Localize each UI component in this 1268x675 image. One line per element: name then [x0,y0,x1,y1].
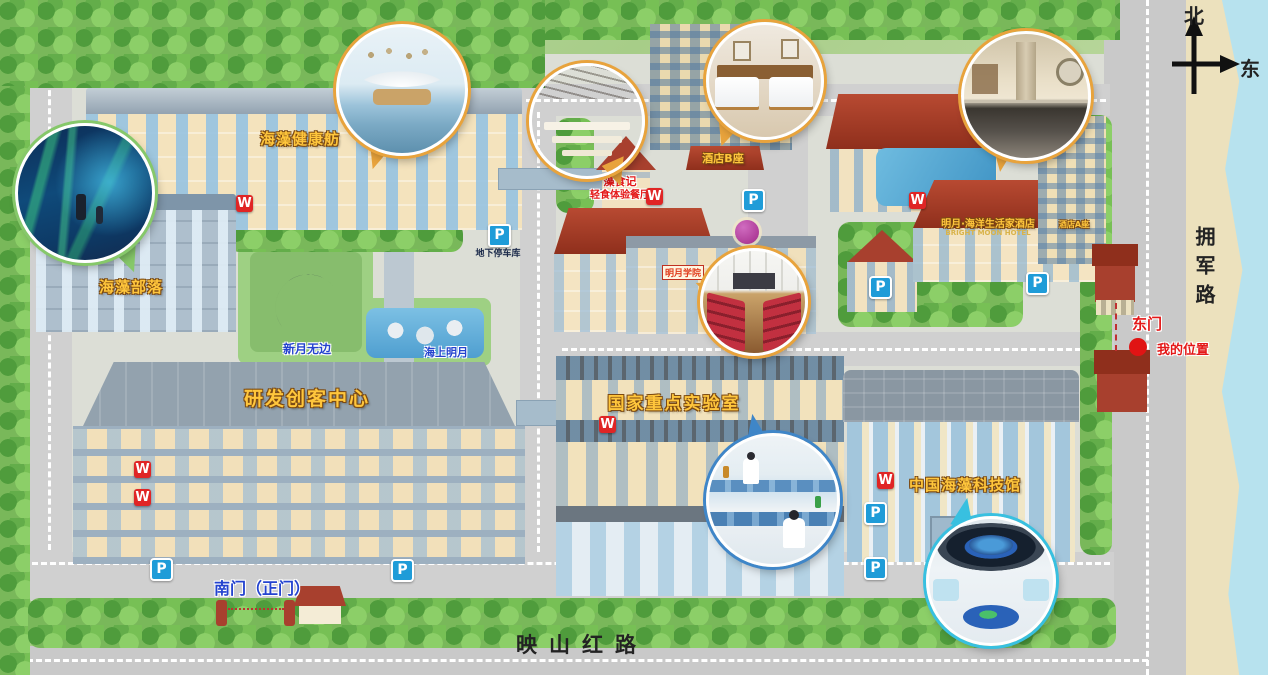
label-hotel-name: 明月·海洋生活家酒店 [941,215,1035,230]
label-crescent-sculpture: 新月无边 [283,340,331,357]
compass-east-label: 东 [1240,53,1260,82]
parking-marker: P [864,502,887,525]
campus-map: 海藻健康舫 海藻部落 研发创客中心 新月无边 海上明月 藻食记 轻食体验餐厅 明… [0,0,1268,675]
photo-inset-lobby [961,31,1091,161]
parking-marker: P [864,557,887,580]
compass: 北 东 [1158,4,1258,104]
south-gate-post-right [284,600,295,626]
crescent-sculpture-icon [269,260,343,338]
toilet-marker: W [599,416,616,433]
label-maker-center: 研发创客中心 [244,384,370,411]
label-road-east: 拥军路 [1190,226,1219,313]
label-seaweed-tribe: 海藻部落 [99,276,163,297]
label-hotel-b: 酒店B座 [702,150,743,166]
my-location-dot [1129,338,1147,356]
label-sea-moon-pond: 海上明月 [424,344,468,360]
building-hotel-cottage [841,230,923,312]
photo-inset-restaurant [529,63,645,179]
photo-inset-lecture-hall [700,248,808,356]
east-gate-path [1115,303,1117,351]
label-my-location: 我的位置 [1157,339,1209,358]
label-hotel-a: 酒店A座 [1059,219,1089,230]
parking-marker: P [150,558,173,581]
photo-inset-laboratory [706,433,840,567]
photo-inset-spa [336,24,468,156]
parking-marker: P [391,559,414,582]
toilet-marker: W [646,188,663,205]
crescent-sculpture [250,252,362,352]
photo-inset-museum-dome [926,516,1056,646]
label-south-gate: 南门（正门） [214,575,310,599]
photo-inset-bedroom [706,22,824,140]
magenta-sculpture [735,220,759,244]
parking-marker: P [742,189,765,212]
toilet-marker: W [134,489,151,506]
label-east-gate: 东门 [1132,313,1162,334]
label-road-south: 映山红路 [516,629,648,659]
label-health-pavilion: 海藻健康舫 [260,128,340,149]
toilet-marker: W [877,472,894,489]
label-science-museum: 中国海藻科技馆 [909,474,1021,495]
east-gate-kiosk-north [1092,244,1138,302]
toilet-marker: W [236,195,253,212]
parking-marker: P [1026,272,1049,295]
south-gate-post-left [216,600,227,626]
toilet-marker: W [134,461,151,478]
south-gate-barrier [228,608,284,610]
photo-inset-aquarium [15,123,155,263]
east-gate-kiosk-south [1094,350,1150,412]
underground-parking-icon: P [488,224,511,247]
label-hotel-name-en: BRIGHT MOON HOTEL [945,229,1030,237]
parking-marker: P [869,276,892,299]
label-underground-parking: 地下停车库 [475,246,520,259]
label-national-lab: 国家重点实验室 [608,389,741,414]
compass-north-label: 北 [1184,0,1204,29]
toilet-marker: W [909,192,926,209]
label-restaurant-subtitle: 轻食体验餐厅 [590,186,650,201]
